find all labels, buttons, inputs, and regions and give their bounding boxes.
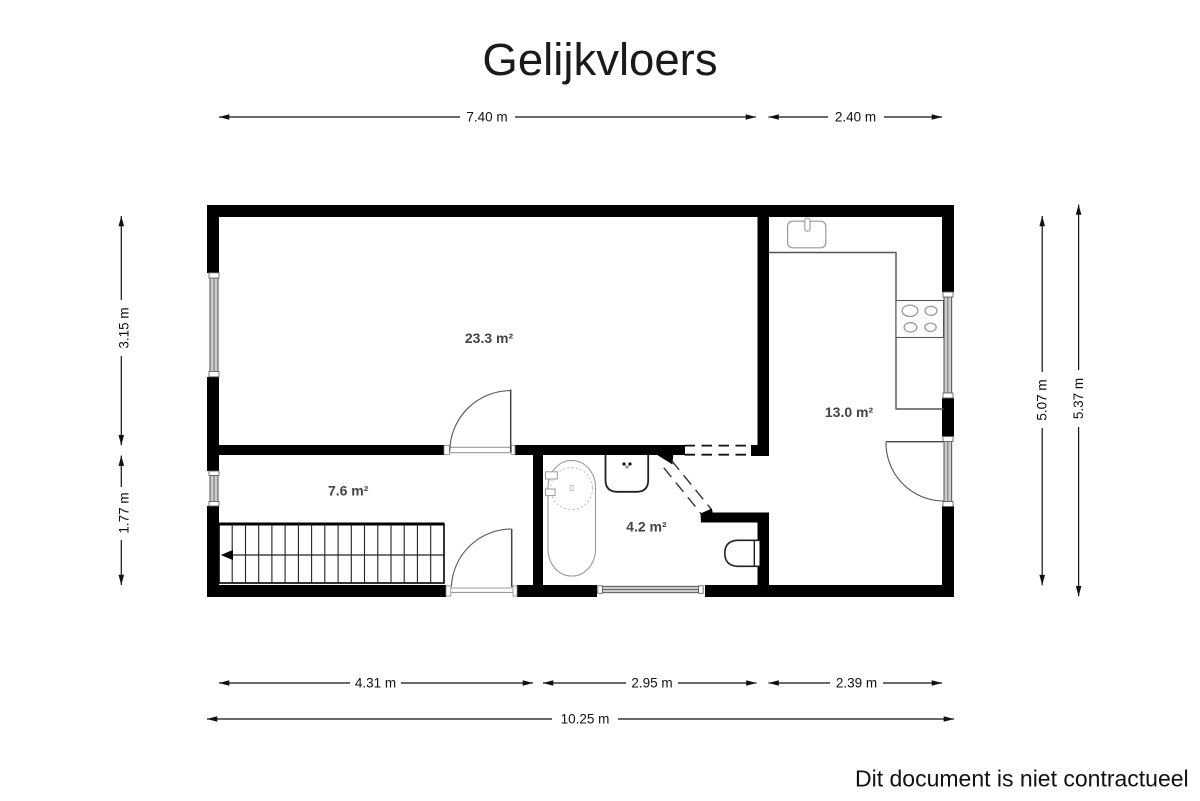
- svg-text:4.2 m²: 4.2 m²: [626, 519, 667, 535]
- svg-text:5.37 m: 5.37 m: [1071, 378, 1086, 419]
- svg-text:3.15 m: 3.15 m: [116, 307, 131, 348]
- svg-text:2.40 m: 2.40 m: [835, 110, 876, 125]
- svg-text:23.3 m²: 23.3 m²: [465, 330, 514, 346]
- svg-text:5.07 m: 5.07 m: [1035, 379, 1050, 420]
- svg-text:10.25 m: 10.25 m: [561, 712, 610, 727]
- svg-text:2.95 m: 2.95 m: [631, 676, 672, 691]
- svg-text:7.6 m²: 7.6 m²: [328, 483, 369, 499]
- svg-text:13.0 m²: 13.0 m²: [825, 404, 874, 420]
- svg-text:Dit document is niet contractu: Dit document is niet contractueel: [855, 766, 1189, 792]
- svg-text:2.39 m: 2.39 m: [836, 676, 877, 691]
- svg-text:1.77 m: 1.77 m: [116, 492, 131, 533]
- svg-text:4.31 m: 4.31 m: [355, 676, 396, 691]
- svg-text:Gelijkvloers: Gelijkvloers: [482, 34, 717, 85]
- svg-text:7.40 m: 7.40 m: [466, 110, 507, 125]
